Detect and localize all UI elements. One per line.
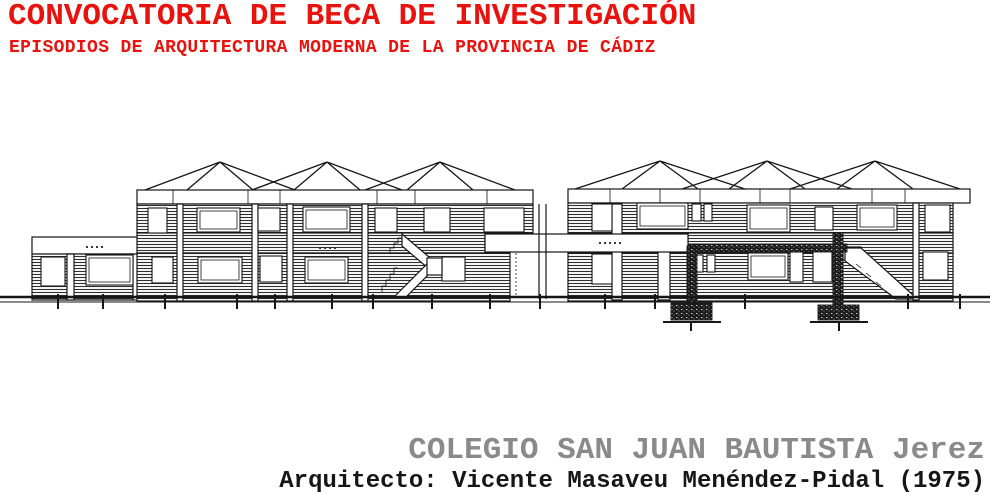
page-subtitle: EPISODIOS DE ARQUITECTURA MODERNA DE LA … bbox=[9, 37, 656, 59]
roof-group-left bbox=[145, 162, 515, 190]
elevation-drawing bbox=[0, 135, 990, 340]
building-caption: COLEGIO SAN JUAN BAUTISTA Jerez bbox=[279, 435, 985, 466]
caption-block: COLEGIO SAN JUAN BAUTISTA Jerez Arquitec… bbox=[279, 435, 985, 495]
windows-right-upper bbox=[592, 203, 950, 232]
low-wing bbox=[32, 237, 147, 300]
architect-caption: Arquitecto: Vicente Masaveu Menéndez-Pid… bbox=[279, 468, 985, 495]
roof-group-right bbox=[575, 161, 960, 189]
walkway-slab bbox=[485, 234, 688, 252]
poster: CONVOCATORIA DE BECA DE INVESTIGACIÓN EP… bbox=[0, 0, 990, 495]
fascia-right bbox=[568, 189, 970, 203]
dark-beam bbox=[688, 244, 847, 252]
page-title: CONVOCATORIA DE BECA DE INVESTIGACIÓN bbox=[8, 1, 696, 33]
fascia-left bbox=[137, 190, 533, 204]
